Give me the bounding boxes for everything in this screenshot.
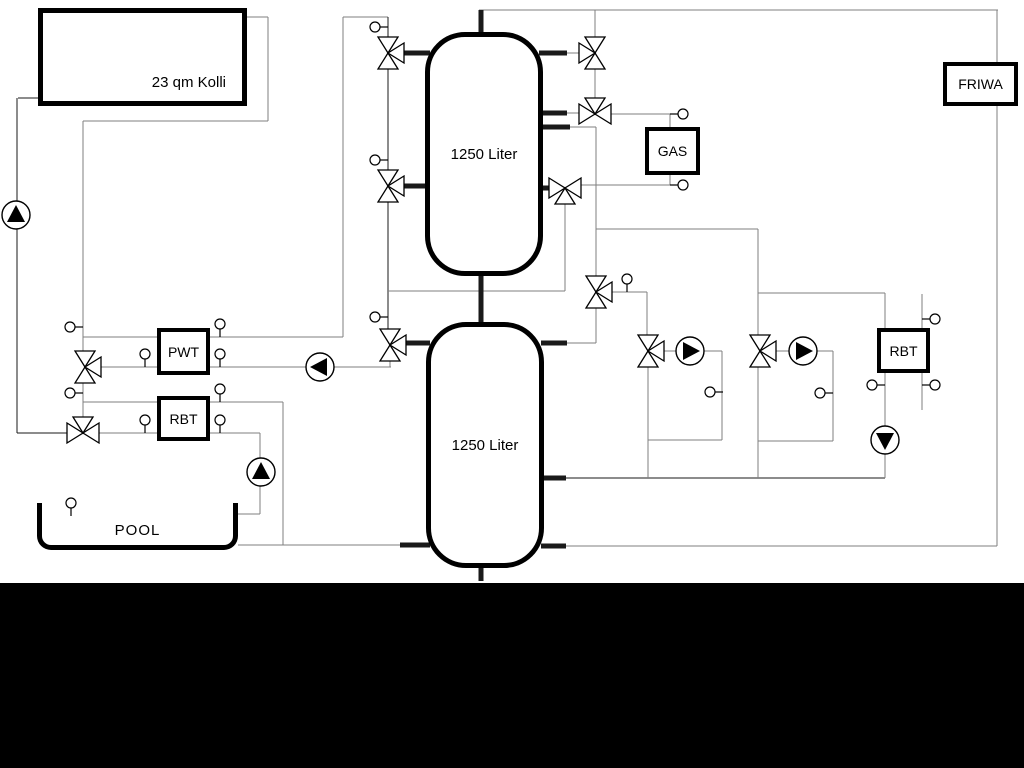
buffer-tank-bottom-label: 1250 Liter: [452, 437, 519, 454]
rbt-right-box: RBT: [877, 328, 930, 373]
buffer-tank-bottom: 1250 Liter: [426, 322, 544, 568]
temperature-sensor-icon: [678, 109, 688, 119]
friwa-station-label: FRIWA: [958, 76, 1003, 92]
pwt-heat-exchanger-box: PWT: [157, 328, 210, 375]
temperature-sensor-icon: [678, 180, 688, 190]
pwt-heat-exchanger-label: PWT: [168, 344, 199, 360]
temperature-sensor-icon: [370, 312, 380, 322]
temperature-sensor-icon: [140, 349, 150, 359]
temperature-sensor-icon: [930, 380, 940, 390]
pool-label: POOL: [115, 522, 161, 539]
temperature-sensor-icon: [65, 388, 75, 398]
buffer-tank-top: 1250 Liter: [425, 32, 543, 276]
solar-collector-box: 23 qm Kolli: [38, 8, 247, 106]
temperature-sensor-icon: [215, 319, 225, 329]
schematic-page: 23 qm Kolli 1250 Liter 1250 Liter GAS FR…: [0, 0, 1024, 768]
temperature-sensor-icon: [215, 415, 225, 425]
pool-basin: POOL: [37, 503, 238, 550]
temperature-sensor-icon: [930, 314, 940, 324]
buffer-tank-top-label: 1250 Liter: [451, 146, 518, 163]
temperature-sensor-icon: [215, 384, 225, 394]
temperature-sensor-icon: [370, 22, 380, 32]
friwa-station-box: FRIWA: [943, 62, 1018, 106]
temperature-sensor-icon: [215, 349, 225, 359]
temperature-sensor-icon: [622, 274, 632, 284]
letterbox-bar: [0, 583, 1024, 768]
temperature-sensor-icon: [370, 155, 380, 165]
solar-collector-label: 23 qm Kolli: [152, 74, 226, 91]
temperature-sensor-icon: [815, 388, 825, 398]
temperature-sensor-icon: [65, 322, 75, 332]
rbt-left-label: RBT: [170, 411, 198, 427]
temperature-sensor-icon: [867, 380, 877, 390]
rbt-left-box: RBT: [157, 396, 210, 441]
temperature-sensor-icon: [140, 415, 150, 425]
gas-boiler-box: GAS: [645, 127, 700, 175]
gas-boiler-label: GAS: [658, 143, 688, 159]
temperature-sensor-icon: [705, 387, 715, 397]
rbt-right-label: RBT: [890, 343, 918, 359]
